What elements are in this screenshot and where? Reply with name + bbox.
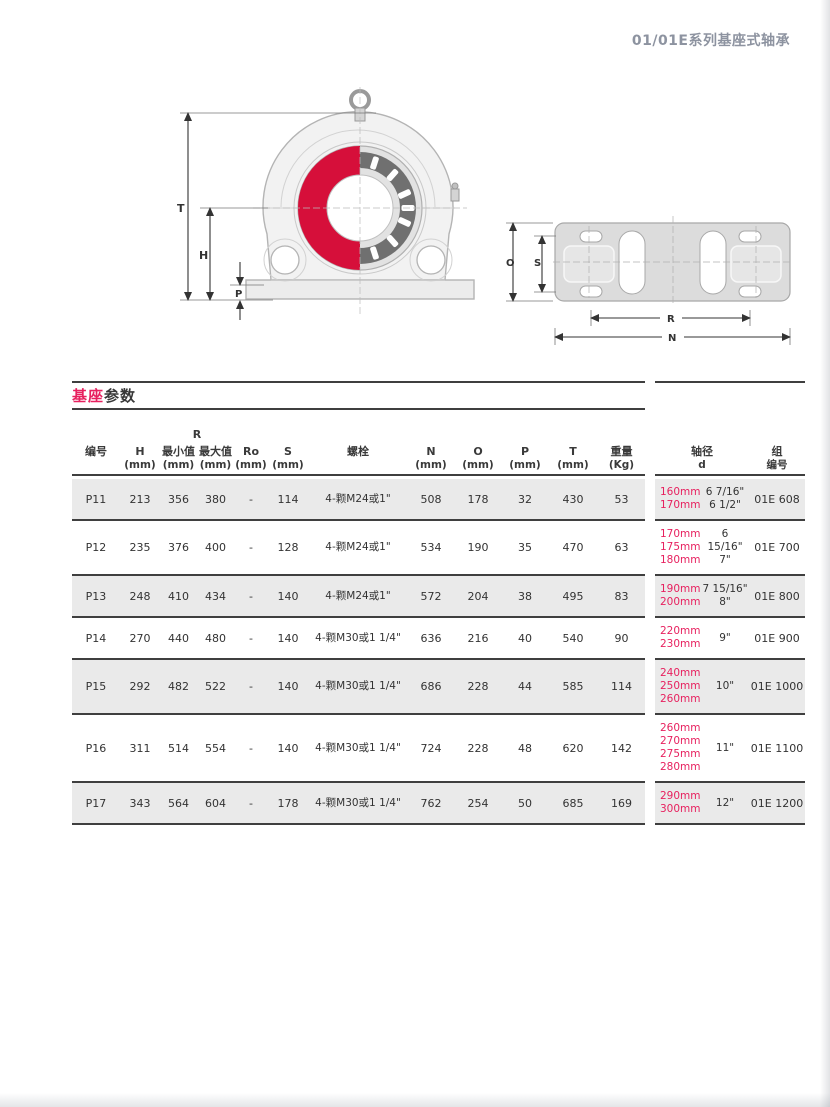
- cell-bolt: 4-颗M30或1 1/4": [315, 742, 401, 755]
- section-title-accent: 基座: [72, 387, 104, 405]
- cell-s: 114: [278, 493, 299, 506]
- col-unit-r_min: (mm): [160, 458, 197, 472]
- cell-s: 140: [278, 742, 299, 755]
- cell-h: 343: [130, 797, 151, 810]
- col-unit-r_max: (mm): [197, 458, 234, 472]
- cell-n: 686: [421, 680, 442, 693]
- cell-t: 495: [563, 590, 584, 603]
- divider: [72, 381, 645, 383]
- cell-t: 470: [563, 541, 584, 554]
- group-number: 01E 700: [749, 541, 805, 554]
- table-row: P11213356380-1144-颗M24或1"508178324305316…: [72, 479, 805, 521]
- cell-n: 508: [421, 493, 442, 506]
- cell-p: 50: [518, 797, 532, 810]
- cell-s: 140: [278, 632, 299, 645]
- cell-h: 213: [130, 493, 151, 506]
- dim-label-r: R: [667, 314, 675, 325]
- cell-rmin: 564: [168, 797, 189, 810]
- cell-h: 311: [130, 742, 151, 755]
- group-number: 01E 1000: [749, 680, 805, 693]
- cell-o: 228: [468, 680, 489, 693]
- row-id: P16: [86, 742, 107, 755]
- cell-o: 216: [468, 632, 489, 645]
- cell-o: 254: [468, 797, 489, 810]
- cell-h: 270: [130, 632, 151, 645]
- cell-rmin: 356: [168, 493, 189, 506]
- group-number: 01E 900: [749, 632, 805, 645]
- col-unit-n: (mm): [408, 458, 454, 472]
- col-header-shaft: 轴径: [655, 445, 749, 458]
- shaft-diameter-mm: 160mm170mm: [655, 486, 701, 512]
- table-row: P14270440480-1404-颗M30或1 1/4"63621640540…: [72, 618, 805, 660]
- divider: [72, 408, 645, 410]
- table-header-left: R编号H(mm)最小值(mm)最大值(mm)Ro(mm)S(mm)螺栓N(mm)…: [72, 428, 645, 476]
- shaft-diameter-mm: 220mm230mm: [655, 625, 701, 651]
- cell-p: 40: [518, 632, 532, 645]
- cell-n: 572: [421, 590, 442, 603]
- shaft-diameter-inch: 6 7/16"6 1/2": [701, 486, 749, 512]
- cell-bolt: 4-颗M30或1 1/4": [315, 797, 401, 810]
- dim-label-o: O: [506, 258, 515, 269]
- group-number: 01E 800: [749, 590, 805, 603]
- cell-weight: 90: [615, 632, 629, 645]
- shaft-diameter-mm: 190mm200mm: [655, 583, 701, 609]
- table-row: P17343564604-1784-颗M30或1 1/4"76225450685…: [72, 783, 805, 825]
- cell-bolt: 4-颗M24或1": [325, 493, 390, 506]
- cell-rmax: 434: [205, 590, 226, 603]
- section-title-rest: 参数: [104, 387, 136, 405]
- dim-label-t: T: [177, 202, 185, 215]
- cell-rmin: 514: [168, 742, 189, 755]
- table-row: P13248410434-1404-颗M24或1"572204384958319…: [72, 576, 805, 618]
- cell-weight: 53: [615, 493, 629, 506]
- cell-o: 178: [468, 493, 489, 506]
- cell-weight: 169: [611, 797, 632, 810]
- col-unit-s: (mm): [268, 458, 308, 472]
- cell-weight: 114: [611, 680, 632, 693]
- shaft-diameter-inch: 615/16"7": [701, 528, 749, 567]
- cell-n: 762: [421, 797, 442, 810]
- col-header-id: 编号: [72, 445, 120, 458]
- col-unit-ro: (mm): [234, 458, 268, 472]
- shaft-diameter-mm: 240mm250mm260mm: [655, 667, 701, 706]
- cell-weight: 63: [615, 541, 629, 554]
- bolt-slot-left: [619, 231, 645, 294]
- shaft-diameter-inch: 12": [701, 797, 749, 810]
- col-header-n: N: [408, 445, 454, 458]
- cell-s: 140: [278, 590, 299, 603]
- col-unit-p: (mm): [502, 458, 548, 472]
- shaft-diameter-mm: 290mm300mm: [655, 790, 701, 816]
- page-edge-bottom: [0, 1093, 830, 1107]
- cell-s: 140: [278, 680, 299, 693]
- dim-label-h: H: [199, 249, 208, 262]
- row-id: P17: [86, 797, 107, 810]
- col-subheader-shaft: d: [655, 458, 749, 472]
- cell-rmin: 440: [168, 632, 189, 645]
- mounting-hole-right: [417, 246, 445, 274]
- cell-bolt: 4-颗M24或1": [325, 590, 390, 603]
- table-body: P11213356380-1144-颗M24或1"508178324305316…: [72, 479, 805, 825]
- col-header-s: S: [268, 445, 308, 458]
- cell-n: 534: [421, 541, 442, 554]
- group-number: 01E 1100: [749, 742, 805, 755]
- cell-ro: -: [249, 742, 253, 755]
- top-view-drawing: O S R N: [498, 206, 813, 351]
- cell-t: 430: [563, 493, 584, 506]
- mounting-hole-left: [271, 246, 299, 274]
- col-header-r_min: 最小值: [160, 445, 197, 458]
- row-id: P14: [86, 632, 107, 645]
- cell-s: 128: [278, 541, 299, 554]
- cell-n: 636: [421, 632, 442, 645]
- cell-rmin: 376: [168, 541, 189, 554]
- cell-rmax: 480: [205, 632, 226, 645]
- grease-fitting-icon: [451, 183, 459, 201]
- row-id: P15: [86, 680, 107, 693]
- cell-p: 44: [518, 680, 532, 693]
- cell-ro: -: [249, 590, 253, 603]
- cell-n: 724: [421, 742, 442, 755]
- table-row: P15292482522-1404-颗M30或1 1/4"68622844585…: [72, 660, 805, 715]
- cell-t: 540: [563, 632, 584, 645]
- shaft-diameter-inch: 11": [701, 742, 749, 755]
- cell-h: 248: [130, 590, 151, 603]
- cell-h: 235: [130, 541, 151, 554]
- dim-label-p: P: [235, 289, 242, 300]
- cell-bolt: 4-颗M30或1 1/4": [315, 632, 401, 645]
- group-number: 01E 608: [749, 493, 805, 506]
- cell-t: 620: [563, 742, 584, 755]
- col-header-group: 组: [749, 445, 805, 458]
- shaft-diameter-inch: 7 15/16"8": [701, 583, 749, 609]
- cell-weight: 83: [615, 590, 629, 603]
- front-view-drawing: T H P: [168, 84, 498, 336]
- col-header-t: T: [548, 445, 598, 458]
- cell-t: 585: [563, 680, 584, 693]
- row-id: P12: [86, 541, 107, 554]
- cell-p: 38: [518, 590, 532, 603]
- col-unit-h: (mm): [120, 458, 160, 472]
- col-unit-o: (mm): [454, 458, 502, 472]
- col-unit-weight: (Kg): [598, 458, 645, 472]
- catalog-page: 01/01E系列基座式轴承: [0, 0, 830, 1107]
- cell-o: 228: [468, 742, 489, 755]
- cell-ro: -: [249, 632, 253, 645]
- cell-bolt: 4-颗M30或1 1/4": [315, 680, 401, 693]
- cell-h: 292: [130, 680, 151, 693]
- cell-o: 190: [468, 541, 489, 554]
- cell-weight: 142: [611, 742, 632, 755]
- col-header-h: H: [120, 445, 160, 458]
- table-header-right: 轴径组d编号: [655, 428, 805, 476]
- cell-t: 685: [563, 797, 584, 810]
- cell-bolt: 4-颗M24或1": [325, 541, 390, 554]
- cell-s: 178: [278, 797, 299, 810]
- shaft-diameter-inch: 10": [701, 680, 749, 693]
- cell-ro: -: [249, 541, 253, 554]
- row-id: P11: [86, 493, 107, 506]
- divider: [655, 381, 805, 383]
- dim-label-n: N: [668, 333, 676, 344]
- cell-p: 35: [518, 541, 532, 554]
- col-subheader-group: 编号: [749, 458, 805, 472]
- col-header-o: O: [454, 445, 502, 458]
- col-unit-t: (mm): [548, 458, 598, 472]
- dim-label-s: S: [534, 258, 541, 269]
- col-header-r_max: 最大值: [197, 445, 234, 458]
- cell-rmin: 482: [168, 680, 189, 693]
- cell-ro: -: [249, 680, 253, 693]
- cell-rmax: 604: [205, 797, 226, 810]
- col-header-ro: Ro: [234, 445, 268, 458]
- row-id: P13: [86, 590, 107, 603]
- group-number: 01E 1200: [749, 797, 805, 810]
- shaft-diameter-mm: 260mm270mm275mm280mm: [655, 722, 701, 774]
- page-edge-right: [820, 0, 830, 1107]
- cell-rmax: 554: [205, 742, 226, 755]
- section-title: 基座参数: [72, 385, 136, 406]
- shaft-diameter-inch: 9": [701, 632, 749, 645]
- bolt-slot-right: [700, 231, 726, 294]
- shaft-diameter-mm: 170mm175mm180mm: [655, 528, 701, 567]
- col-header-bolt: 螺栓: [308, 445, 408, 458]
- table-row: P16311514554-1404-颗M30或1 1/4"72422848620…: [72, 715, 805, 783]
- cell-rmax: 522: [205, 680, 226, 693]
- cell-p: 32: [518, 493, 532, 506]
- cell-rmax: 380: [205, 493, 226, 506]
- cell-rmax: 400: [205, 541, 226, 554]
- col-header-weight: 重量: [598, 445, 645, 458]
- col-group-header-r: R: [160, 428, 234, 441]
- col-header-p: P: [502, 445, 548, 458]
- cell-ro: -: [249, 797, 253, 810]
- page-title: 01/01E系列基座式轴承: [632, 30, 790, 50]
- table-row: P12235376400-1284-颗M24或1"534190354706317…: [72, 521, 805, 576]
- cell-o: 204: [468, 590, 489, 603]
- cell-ro: -: [249, 493, 253, 506]
- cell-rmin: 410: [168, 590, 189, 603]
- cell-p: 48: [518, 742, 532, 755]
